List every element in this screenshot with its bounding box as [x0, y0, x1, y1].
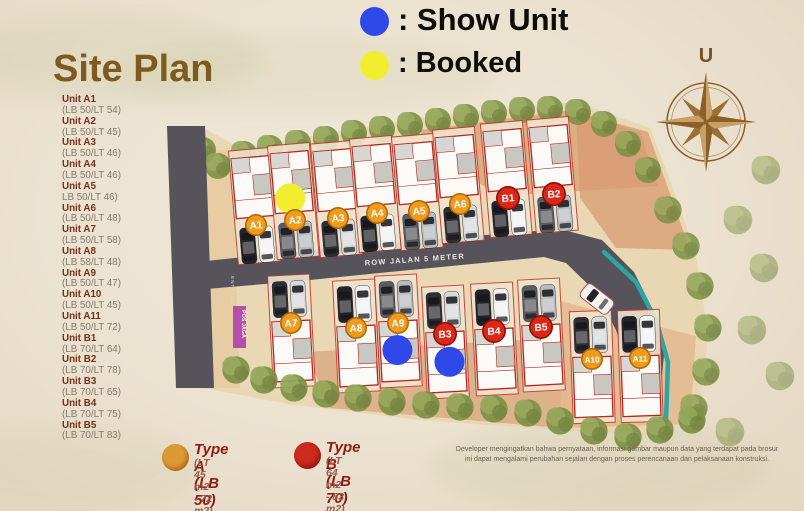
sidebar-unit-item: Unit A5LB 50/LT 46): [62, 182, 172, 204]
unit-spec: LB 50/LT 46): [62, 193, 172, 204]
svg-text:B5: B5: [534, 322, 548, 334]
unit-spec-list: Unit A1(LB 50/LT 54)Unit A2(LB 50/LT 45)…: [62, 95, 172, 442]
parked-car-icon: [272, 281, 289, 318]
unit-lot-A11: A11: [617, 309, 663, 422]
svg-text:A10: A10: [584, 355, 600, 365]
tree-icon: [480, 395, 507, 422]
tree-icon: [686, 272, 713, 299]
sidebar-unit-item: Unit B5(LB 70/LT 83): [62, 421, 172, 443]
disclaimer-text: Developer mengingatkan bahwa pernyataan,…: [428, 445, 804, 465]
sidebar-unit-item: Unit A11(LB 50/LT 72): [62, 312, 172, 334]
sidebar-unit-item: Unit A10(LB 50/LT 45): [62, 290, 172, 312]
unit-lot-B4: B4: [471, 282, 519, 396]
svg-text:A1: A1: [249, 220, 263, 232]
tree-icon: [750, 254, 779, 283]
show-unit-label: : Show Unit: [398, 2, 568, 38]
tree-icon: [222, 356, 249, 383]
sidebar-unit-item: Unit A6(LB 50/LT 48): [62, 204, 172, 226]
svg-text:A8: A8: [349, 323, 363, 335]
tree-icon: [580, 417, 607, 444]
tree-icon: [591, 111, 617, 137]
tree-icon: [514, 399, 541, 426]
tree-icon: [694, 314, 721, 341]
unit-lot-A10: A10: [569, 310, 615, 423]
parked-car-icon: [640, 315, 656, 352]
tree-icon: [692, 358, 719, 385]
sidebar-unit-item: Unit B3(LB 70/LT 65): [62, 377, 172, 399]
svg-text:B4: B4: [487, 326, 501, 338]
svg-text:A2: A2: [288, 215, 302, 227]
tree-icon: [752, 156, 781, 185]
unit-lot-A8: A8: [333, 279, 381, 393]
sidebar-unit-item: Unit A1(LB 50/LT 54): [62, 95, 172, 117]
unit-spec: (LB 70/LT 83): [62, 431, 172, 442]
svg-text:A3: A3: [331, 213, 345, 225]
tree-icon: [312, 380, 339, 407]
tree-icon: [678, 406, 705, 433]
tree-icon: [453, 104, 479, 130]
tree-icon: [397, 112, 423, 138]
tree-icon: [344, 384, 371, 411]
unit-spec: (LB 58/LT 48): [62, 258, 172, 269]
tree-icon: [546, 407, 573, 434]
unit-lot-B5: B5: [518, 278, 566, 392]
sidebar-unit-item: Unit A4(LB 50/LT 46): [62, 160, 172, 182]
tree-icon: [446, 393, 473, 420]
svg-text:A6: A6: [453, 199, 467, 211]
unit-name: Unit B1: [62, 334, 172, 345]
sidebar-unit-item: Unit B2(LB 70/LT 78): [62, 355, 172, 377]
svg-text:A9: A9: [391, 318, 405, 330]
tree-icon: [280, 374, 307, 401]
sidebar-unit-item: Unit B4(LB 70/LT 75): [62, 399, 172, 421]
unit-name: Unit A5: [62, 182, 172, 193]
tree-icon: [654, 196, 681, 223]
tree-icon: [205, 153, 231, 179]
svg-text:A11: A11: [633, 354, 648, 364]
sidebar-unit-item: Unit A8(LB 58/LT 48): [62, 247, 172, 269]
parked-car-icon: [337, 286, 354, 323]
guard-post-label: POS JAGA: [240, 310, 246, 338]
guard-post: POS JAGA: [233, 306, 246, 348]
svg-text:A7: A7: [284, 318, 298, 330]
tree-icon: [672, 232, 699, 259]
parked-car-icon: [592, 316, 608, 353]
booked-dot-icon: [360, 51, 389, 80]
tree-icon: [412, 391, 439, 418]
svg-text:B3: B3: [438, 329, 452, 341]
disclaimer-line1: Developer mengingatkan bahwa pernyataan,…: [428, 445, 804, 455]
parked-car-icon: [290, 280, 307, 317]
parked-car-icon: [355, 285, 372, 322]
parked-car-icon: [622, 316, 638, 353]
tree-icon: [716, 418, 745, 447]
booked-label: : Booked: [398, 47, 522, 80]
sidebar-unit-item: Unit A7(LB 50/LT 58): [62, 225, 172, 247]
tree-icon: [509, 97, 535, 123]
parked-car-icon: [397, 280, 414, 317]
svg-text:B2: B2: [547, 189, 561, 201]
tree-icon: [766, 362, 795, 391]
svg-text:A4: A4: [370, 208, 384, 220]
unit-name: Unit A2: [62, 117, 172, 128]
svg-text:B1: B1: [501, 193, 515, 205]
sidebar-unit-item: Unit B1(LB 70/LT 64): [62, 334, 172, 356]
unit-lot-A7: A7: [268, 274, 316, 388]
type-a-subtitle: (LT 45 m2 - 72 m2): [194, 457, 213, 511]
type-b-subtitle: (LT 64 m2 - 83 m2): [326, 455, 345, 511]
parked-car-icon: [574, 317, 590, 354]
unit-lot-A9: A9: [375, 274, 423, 388]
tree-icon: [250, 366, 277, 393]
sidebar-unit-item: Unit A3(LB 50/LT 46): [62, 138, 172, 160]
type-a-dot-icon: [162, 444, 189, 471]
status-legend: : Show Unit : Booked: [0, 0, 804, 95]
tree-icon: [724, 206, 753, 235]
sidebar-unit-item: Unit A9(LB 50/LT 47): [62, 269, 172, 291]
site-plan-page: ROW JALAN 5 METERENTRANCEPOS JAGAA1A2A3A…: [0, 0, 804, 511]
svg-text:A5: A5: [412, 206, 426, 218]
sidebar-unit-item: Unit A2(LB 50/LT 45): [62, 117, 172, 139]
tree-icon: [615, 131, 641, 157]
unit-spec: (LB 70/LT 75): [62, 410, 172, 421]
tree-icon: [646, 416, 673, 443]
show-unit-dot-icon: [360, 7, 389, 36]
type-b-dot-icon: [294, 442, 321, 469]
entrance-label: ENTRANCE: [230, 276, 235, 309]
tree-icon: [635, 157, 661, 183]
unit-lot-B3: B3: [422, 285, 470, 399]
tree-icon: [378, 388, 405, 415]
parked-car-icon: [379, 281, 396, 318]
tree-icon: [738, 316, 767, 345]
disclaimer-line2: ini dapat mengalami perubahan sejalan de…: [428, 455, 804, 465]
